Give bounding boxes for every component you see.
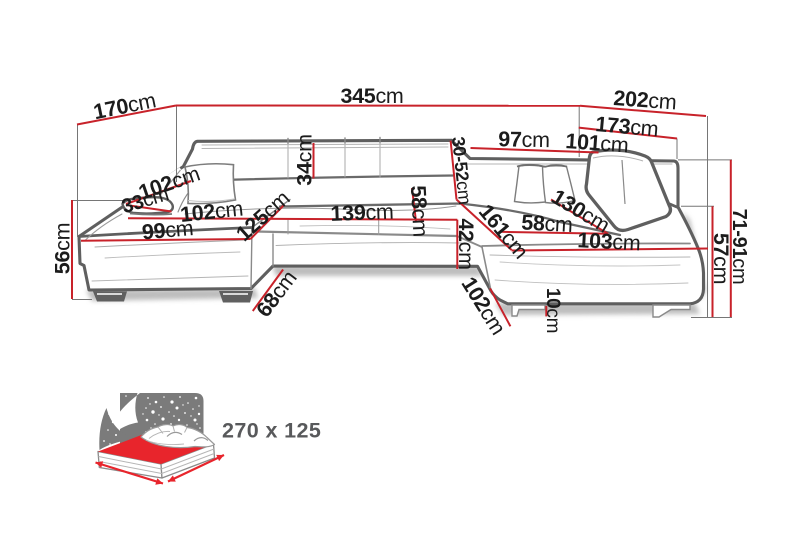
svg-text:101cm: 101cm — [565, 129, 630, 157]
svg-text:270 x 125: 270 x 125 — [222, 419, 321, 443]
svg-text:99cm: 99cm — [141, 216, 194, 244]
svg-text:34cm: 34cm — [292, 134, 316, 185]
svg-text:71-91cm: 71-91cm — [728, 209, 750, 285]
svg-text:345cm: 345cm — [340, 84, 403, 108]
svg-text:139cm: 139cm — [330, 200, 394, 226]
svg-text:202cm: 202cm — [613, 86, 678, 114]
svg-text:10cm: 10cm — [542, 288, 563, 333]
svg-text:42cm: 42cm — [454, 218, 478, 269]
svg-text:103cm: 103cm — [577, 228, 641, 255]
svg-text:58cm: 58cm — [406, 185, 433, 238]
svg-text:97cm: 97cm — [498, 127, 550, 152]
svg-text:56cm: 56cm — [50, 223, 74, 274]
